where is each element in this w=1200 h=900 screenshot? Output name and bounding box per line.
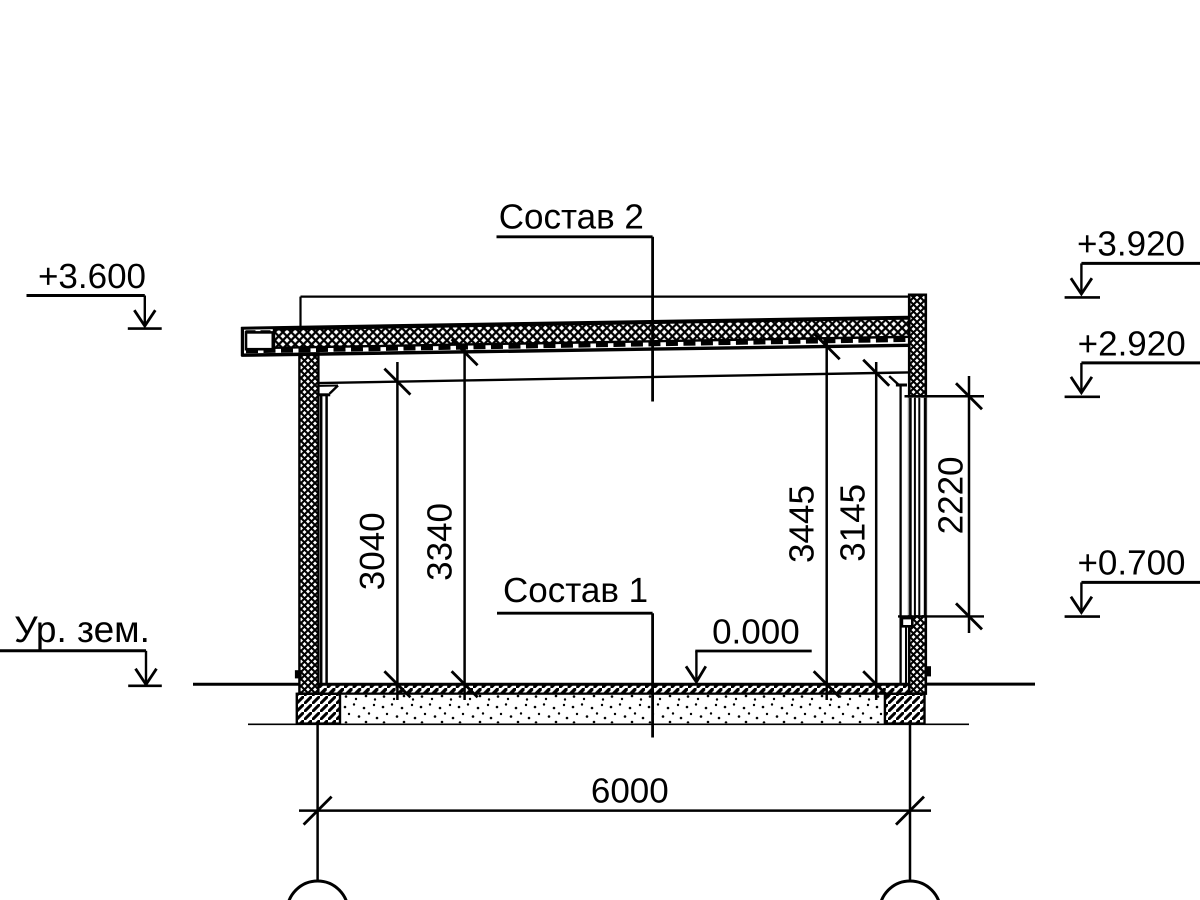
svg-text:3445: 3445 [783, 485, 822, 563]
svg-text:+2.920: +2.920 [1078, 324, 1186, 363]
svg-text:Ур. зем.: Ур. зем. [14, 609, 150, 650]
svg-text:+3.920: +3.920 [1077, 224, 1185, 263]
svg-text:0.000: 0.000 [712, 613, 800, 652]
svg-text:2220: 2220 [931, 456, 970, 534]
svg-text:3340: 3340 [421, 503, 460, 581]
svg-text:+3.600: +3.600 [38, 257, 146, 296]
svg-text:3145: 3145 [833, 484, 872, 562]
svg-text:3040: 3040 [353, 512, 392, 590]
svg-text:Состав 1: Состав 1 [503, 571, 648, 610]
svg-text:+0.700: +0.700 [1077, 544, 1185, 583]
svg-text:Состав 2: Состав 2 [499, 197, 644, 236]
svg-text:6000: 6000 [591, 772, 669, 811]
